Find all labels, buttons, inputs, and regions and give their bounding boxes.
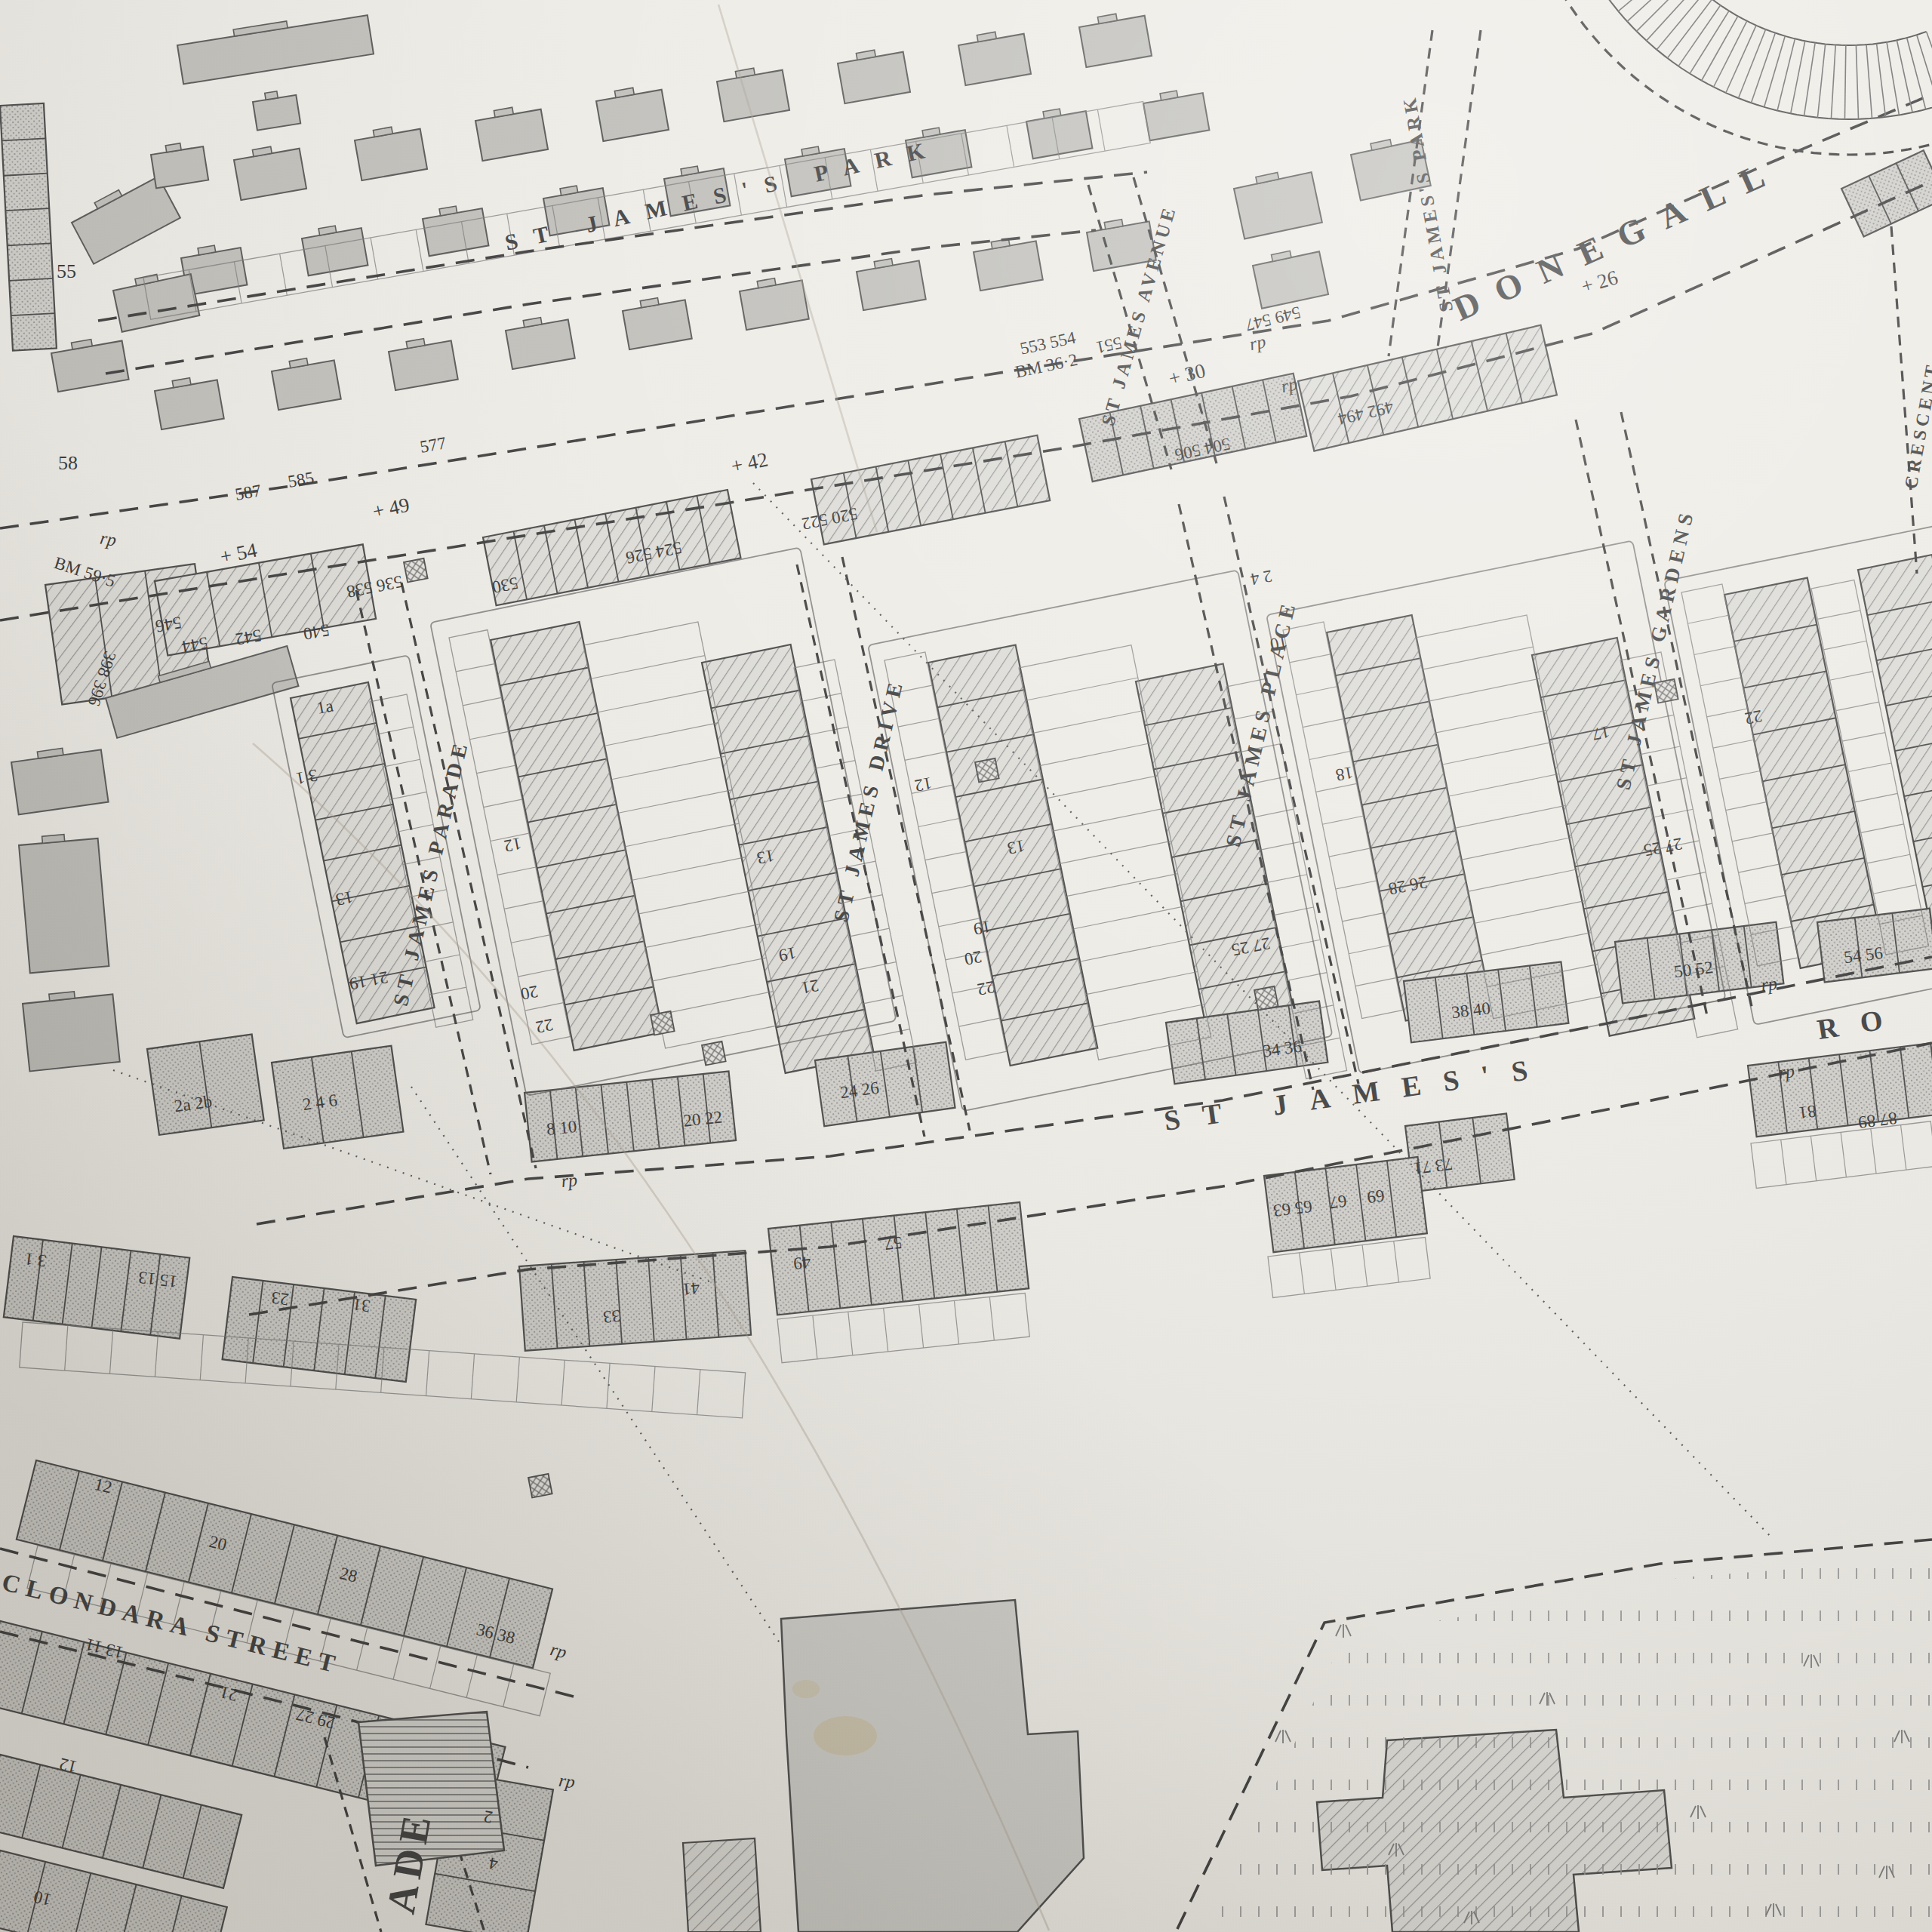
map-photo: ST JAMES'S PARKST JAMES AVENUEST JAMES'S… (0, 0, 1932, 1932)
photo-artifacts (0, 0, 1932, 1932)
os-street-map: ST JAMES'S PARKST JAMES AVENUEST JAMES'S… (0, 0, 1932, 1932)
shadow-overlay (0, 0, 1932, 1932)
